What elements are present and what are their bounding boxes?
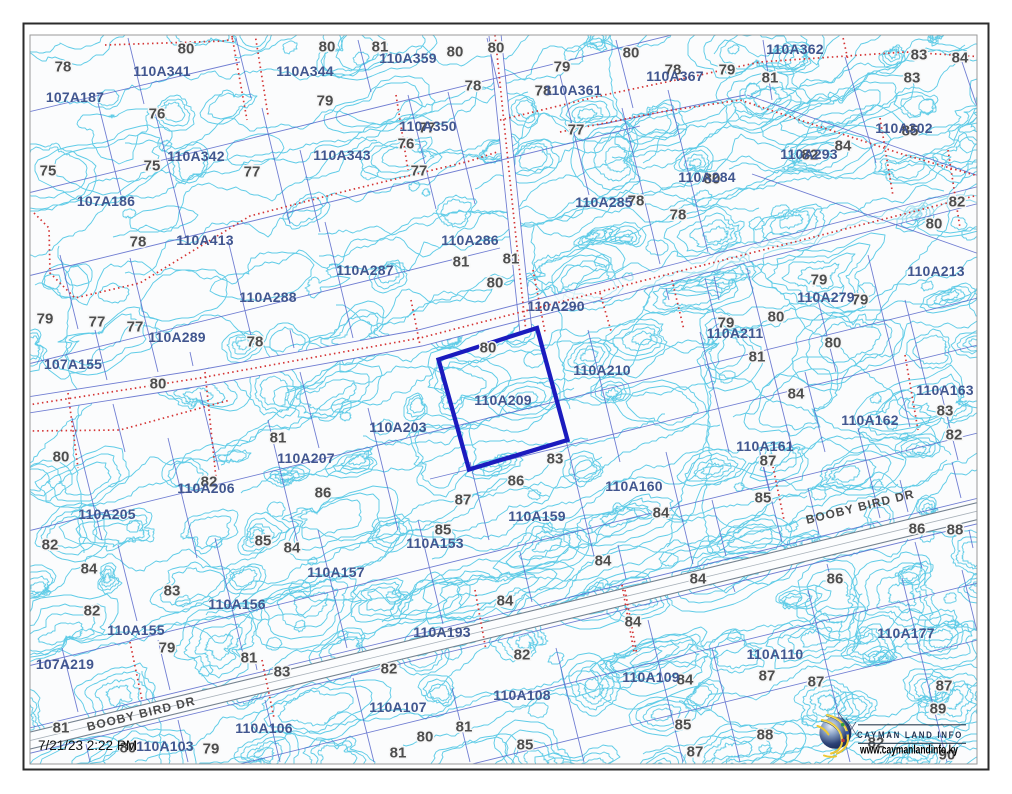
svg-text:81: 81 <box>53 720 70 737</box>
svg-text:81: 81 <box>749 349 766 366</box>
svg-text:80: 80 <box>926 216 943 233</box>
svg-text:83: 83 <box>904 70 921 87</box>
svg-text:110A163: 110A163 <box>916 382 973 398</box>
svg-text:84: 84 <box>653 505 670 522</box>
svg-text:110A205: 110A205 <box>78 506 135 522</box>
svg-text:110A160: 110A160 <box>605 478 662 494</box>
svg-text:80: 80 <box>319 39 336 56</box>
svg-text:CAYMAN LAND INFO: CAYMAN LAND INFO <box>857 730 963 741</box>
svg-text:110A210: 110A210 <box>573 362 630 378</box>
svg-text:110A290: 110A290 <box>527 298 584 314</box>
svg-text:82: 82 <box>514 647 531 664</box>
svg-text:76: 76 <box>149 106 166 123</box>
svg-text:82: 82 <box>946 427 963 444</box>
svg-text:110A288: 110A288 <box>239 289 296 305</box>
svg-text:77: 77 <box>127 319 144 336</box>
svg-text:110A103: 110A103 <box>136 738 193 754</box>
svg-text:110A209: 110A209 <box>474 392 531 408</box>
svg-text:84: 84 <box>788 386 805 403</box>
svg-text:83: 83 <box>547 451 564 468</box>
svg-text:87: 87 <box>808 674 825 691</box>
svg-text:76: 76 <box>398 136 415 153</box>
svg-text:110A350: 110A350 <box>399 118 456 134</box>
svg-text:110A161: 110A161 <box>736 438 793 454</box>
svg-text:80: 80 <box>178 41 195 58</box>
svg-text:110A203: 110A203 <box>369 419 426 435</box>
svg-text:81: 81 <box>503 251 520 268</box>
svg-text:78: 78 <box>55 59 72 76</box>
svg-text:78: 78 <box>670 207 687 224</box>
svg-text:80: 80 <box>417 729 434 746</box>
svg-text:81: 81 <box>390 745 407 762</box>
svg-text:81: 81 <box>453 254 470 271</box>
svg-text:110A207: 110A207 <box>277 450 334 466</box>
svg-text:87: 87 <box>759 668 776 685</box>
svg-text:86: 86 <box>508 473 525 490</box>
svg-text:84: 84 <box>497 593 514 610</box>
svg-text:110A413: 110A413 <box>176 232 233 248</box>
svg-text:79: 79 <box>719 62 736 79</box>
svg-text:83: 83 <box>164 583 181 600</box>
svg-text:110A362: 110A362 <box>766 41 823 57</box>
svg-text:86: 86 <box>909 521 926 538</box>
svg-text:85: 85 <box>675 717 692 734</box>
svg-text:75: 75 <box>40 163 57 180</box>
svg-text:110A293: 110A293 <box>780 146 837 162</box>
svg-text:86: 86 <box>827 571 844 588</box>
svg-text:86: 86 <box>315 485 332 502</box>
svg-text:83: 83 <box>911 47 928 64</box>
svg-text:110A107: 110A107 <box>369 699 426 715</box>
svg-text:87: 87 <box>455 492 472 509</box>
svg-text:79: 79 <box>203 741 220 758</box>
svg-text:79: 79 <box>159 640 176 657</box>
svg-text:110A108: 110A108 <box>493 687 550 703</box>
svg-text:110A289: 110A289 <box>148 329 205 345</box>
svg-text:79: 79 <box>317 93 334 110</box>
svg-text:110A110: 110A110 <box>747 646 804 662</box>
svg-text:81: 81 <box>270 430 287 447</box>
svg-text:84: 84 <box>81 561 98 578</box>
svg-text:81: 81 <box>456 719 473 736</box>
svg-text:80: 80 <box>150 376 167 393</box>
svg-text:84: 84 <box>284 540 301 557</box>
svg-text:79: 79 <box>554 59 571 76</box>
svg-text:110A279: 110A279 <box>797 289 854 305</box>
svg-text:87: 87 <box>687 744 704 761</box>
svg-text:89: 89 <box>930 701 947 718</box>
svg-text:110A361: 110A361 <box>544 82 601 98</box>
svg-text:110A286: 110A286 <box>441 232 498 248</box>
svg-text:107A155: 107A155 <box>44 356 102 372</box>
svg-text:83: 83 <box>937 403 954 420</box>
svg-text:110A302: 110A302 <box>875 120 932 136</box>
svg-text:81: 81 <box>241 650 258 667</box>
svg-text:110A284: 110A284 <box>678 169 735 185</box>
svg-text:110A155: 110A155 <box>107 622 164 638</box>
svg-text:77: 77 <box>568 122 585 139</box>
svg-text:82: 82 <box>42 537 59 554</box>
svg-text:88: 88 <box>757 727 774 744</box>
svg-text:110A109: 110A109 <box>622 669 679 685</box>
svg-text:110A344: 110A344 <box>276 63 333 79</box>
svg-text:84: 84 <box>690 571 707 588</box>
svg-text:110A157: 110A157 <box>307 564 364 580</box>
svg-text:107A187: 107A187 <box>46 89 104 105</box>
svg-text:110A159: 110A159 <box>508 508 565 524</box>
svg-text:107A219: 107A219 <box>36 656 94 672</box>
svg-text:80: 80 <box>480 340 497 357</box>
svg-text:85: 85 <box>517 737 534 754</box>
svg-text:77: 77 <box>244 164 261 181</box>
svg-text:80: 80 <box>488 40 505 57</box>
svg-text:78: 78 <box>465 78 482 95</box>
svg-text:84: 84 <box>952 50 969 67</box>
svg-text:79: 79 <box>811 272 828 289</box>
svg-text:77: 77 <box>89 314 106 331</box>
svg-text:79: 79 <box>37 311 54 328</box>
svg-text:85: 85 <box>255 533 272 550</box>
svg-text:77: 77 <box>411 163 428 180</box>
svg-text:84: 84 <box>625 614 642 631</box>
svg-text:110A213: 110A213 <box>907 263 964 279</box>
svg-text:80: 80 <box>623 45 640 62</box>
svg-text:110A211: 110A211 <box>707 325 764 341</box>
svg-text:80: 80 <box>487 275 504 292</box>
svg-text:83: 83 <box>274 664 291 681</box>
svg-text:110A162: 110A162 <box>841 412 898 428</box>
svg-text:82: 82 <box>381 661 398 678</box>
svg-text:80: 80 <box>825 335 842 352</box>
svg-text:75: 75 <box>144 158 161 175</box>
svg-text:110A153: 110A153 <box>406 535 463 551</box>
svg-text:78: 78 <box>247 334 264 351</box>
svg-text:110A285: 110A285 <box>575 194 632 210</box>
svg-text:110A287: 110A287 <box>336 262 393 278</box>
svg-text:110A367: 110A367 <box>646 68 703 84</box>
svg-text:110A341: 110A341 <box>133 63 190 79</box>
svg-text:110A343: 110A343 <box>313 147 370 163</box>
svg-text:107A186: 107A186 <box>77 193 135 209</box>
svg-text:87: 87 <box>760 453 777 470</box>
svg-text:110A106: 110A106 <box>235 720 292 736</box>
svg-text:82: 82 <box>949 194 966 211</box>
svg-text:82: 82 <box>84 603 101 620</box>
svg-text:80: 80 <box>53 449 70 466</box>
svg-text:87: 87 <box>936 678 953 695</box>
svg-text:110A193: 110A193 <box>413 624 470 640</box>
svg-text:88: 88 <box>947 522 964 539</box>
svg-text:78: 78 <box>130 234 147 251</box>
svg-text:84: 84 <box>595 553 612 570</box>
svg-text:80: 80 <box>447 44 464 61</box>
svg-text:81: 81 <box>762 70 779 87</box>
svg-text:www.caymanlandinfo.ky: www.caymanlandinfo.ky <box>859 745 958 757</box>
svg-text:80: 80 <box>768 309 785 326</box>
svg-text:110A359: 110A359 <box>379 50 436 66</box>
svg-text:110A206: 110A206 <box>177 480 234 496</box>
svg-text:110A177: 110A177 <box>877 625 934 641</box>
svg-text:110A156: 110A156 <box>208 596 265 612</box>
svg-text:110A342: 110A342 <box>167 148 224 164</box>
svg-text:85: 85 <box>755 490 772 507</box>
svg-text:7/21/23 2:22 PM: 7/21/23 2:22 PM <box>38 738 137 753</box>
